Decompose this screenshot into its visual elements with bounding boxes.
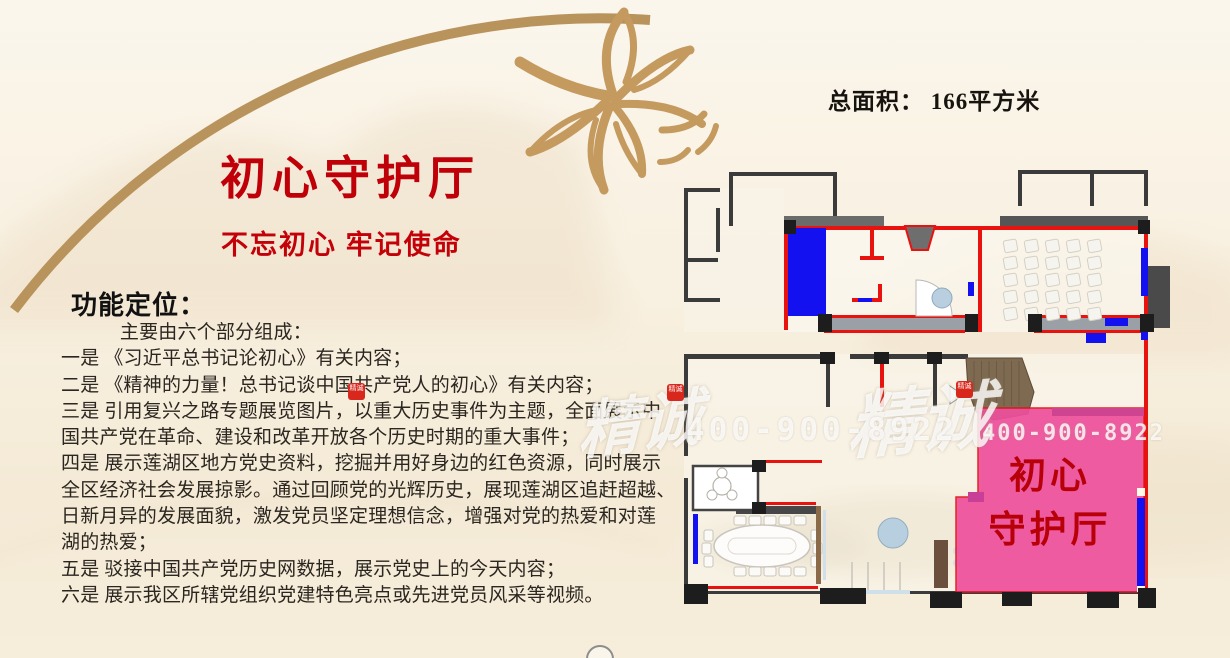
- chair: [704, 530, 713, 541]
- function-text-line: 三是 引用复兴之路专题展览图片，以重大历史事件为主题，全面展示中: [61, 399, 651, 425]
- chair: [1045, 290, 1060, 304]
- chair: [1045, 307, 1060, 321]
- function-heading: 功能定位：: [71, 285, 206, 322]
- chair: [1024, 256, 1039, 270]
- chair: [1003, 290, 1018, 304]
- page-title: 初心守护厅: [220, 142, 480, 208]
- chair: [1087, 290, 1102, 304]
- function-text-line: 二是 《精神的力量！总书记谈中国共产党人的初心》有关内容；: [61, 373, 651, 399]
- function-text-block: 主要由六个部分组成： 一是 《习近平总书记论初心》有关内容；二是 《精神的力量！…: [61, 320, 651, 609]
- chair: [749, 567, 761, 576]
- office-room: [693, 460, 766, 514]
- slide: 总面积： 166平方米 初心守护厅 不忘初心 牢记使命 功能定位： 主要由六个部…: [0, 0, 1230, 658]
- chair: [1066, 273, 1081, 287]
- chair: [734, 516, 746, 525]
- chair: [764, 516, 776, 525]
- floor-plan: 初心 守护厅: [672, 158, 1172, 623]
- function-text-line: 湖的热爱；: [61, 530, 651, 556]
- chair: [1066, 307, 1081, 321]
- function-text-line: 四是 展示莲湖区地方党史资料，挖掘并用好身边的红色资源，同时展示: [61, 451, 651, 477]
- chair: [1045, 239, 1060, 253]
- chair: [1003, 307, 1018, 321]
- chair: [1066, 290, 1081, 304]
- chair: [734, 567, 746, 576]
- chair: [779, 567, 791, 576]
- page-indicator-dot: [586, 645, 614, 658]
- chair: [1087, 256, 1102, 270]
- chair: [1045, 256, 1060, 270]
- chair: [1024, 273, 1039, 287]
- total-area-label: 总面积： 166平方米: [828, 82, 1040, 116]
- chair: [1003, 239, 1018, 253]
- function-text-line: 六是 展示我区所辖党组织党建特色亮点或先进党员风采等视频。: [61, 583, 651, 609]
- chair: [1024, 290, 1039, 304]
- highlight-room: 初心 守护厅: [956, 408, 1145, 592]
- chair: [779, 516, 791, 525]
- function-text-line: 国共产党在革命、建设和改革开放各个历史时期的重大事件；: [61, 425, 651, 451]
- chair: [702, 543, 711, 554]
- chair: [1087, 239, 1102, 253]
- function-text-line: 日新月异的发展面貌，激发党员坚定理想信念，增强对党的热爱和对莲: [61, 504, 651, 530]
- highlight-room-label-line1: 初心: [1009, 455, 1091, 497]
- function-text-line: 五是 驳接中国共产党历史网数据，展示党史上的今天内容；: [61, 557, 651, 583]
- chair: [1003, 273, 1018, 287]
- chair: [749, 516, 761, 525]
- chair: [1003, 256, 1018, 270]
- function-text-line: 一是 《习近平总书记论初心》有关内容；: [61, 346, 651, 372]
- highlight-room-label-line2: 守护厅: [989, 509, 1112, 551]
- chair: [764, 567, 776, 576]
- chair: [1045, 273, 1060, 287]
- chair: [1066, 239, 1081, 253]
- chair: [1024, 239, 1039, 253]
- chair: [704, 556, 713, 567]
- chair: [794, 567, 806, 576]
- function-text-line: 全区经济社会发展掠影。通过回顾党的光辉历史，展现莲湖区追赶超越、: [61, 478, 651, 504]
- chair: [1087, 307, 1102, 321]
- page-subtitle: 不忘初心 牢记使命: [221, 223, 462, 262]
- chair: [1066, 256, 1081, 270]
- function-intro-line: 主要由六个部分组成：: [61, 320, 651, 346]
- function-lines: 一是 《习近平总书记论初心》有关内容；二是 《精神的力量！总书记谈中国共产党人的…: [61, 346, 651, 609]
- chair: [1087, 273, 1102, 287]
- chair: [794, 516, 806, 525]
